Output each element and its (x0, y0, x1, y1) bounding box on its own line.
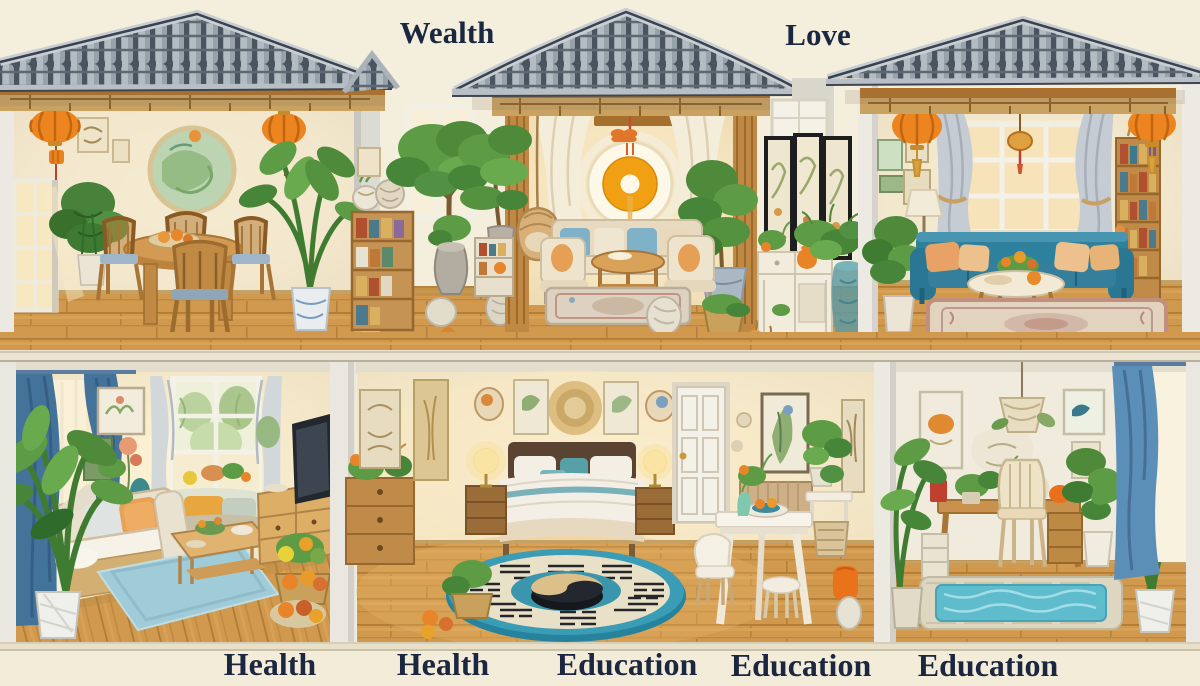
svg-text:Education: Education (918, 647, 1059, 683)
svg-text:Love: Love (785, 17, 850, 52)
svg-text:Wealth: Wealth (400, 15, 495, 50)
svg-text:Health: Health (397, 646, 490, 682)
svg-text:Health: Health (224, 646, 317, 682)
svg-text:Education: Education (557, 646, 698, 682)
svg-text:Education: Education (731, 647, 872, 683)
